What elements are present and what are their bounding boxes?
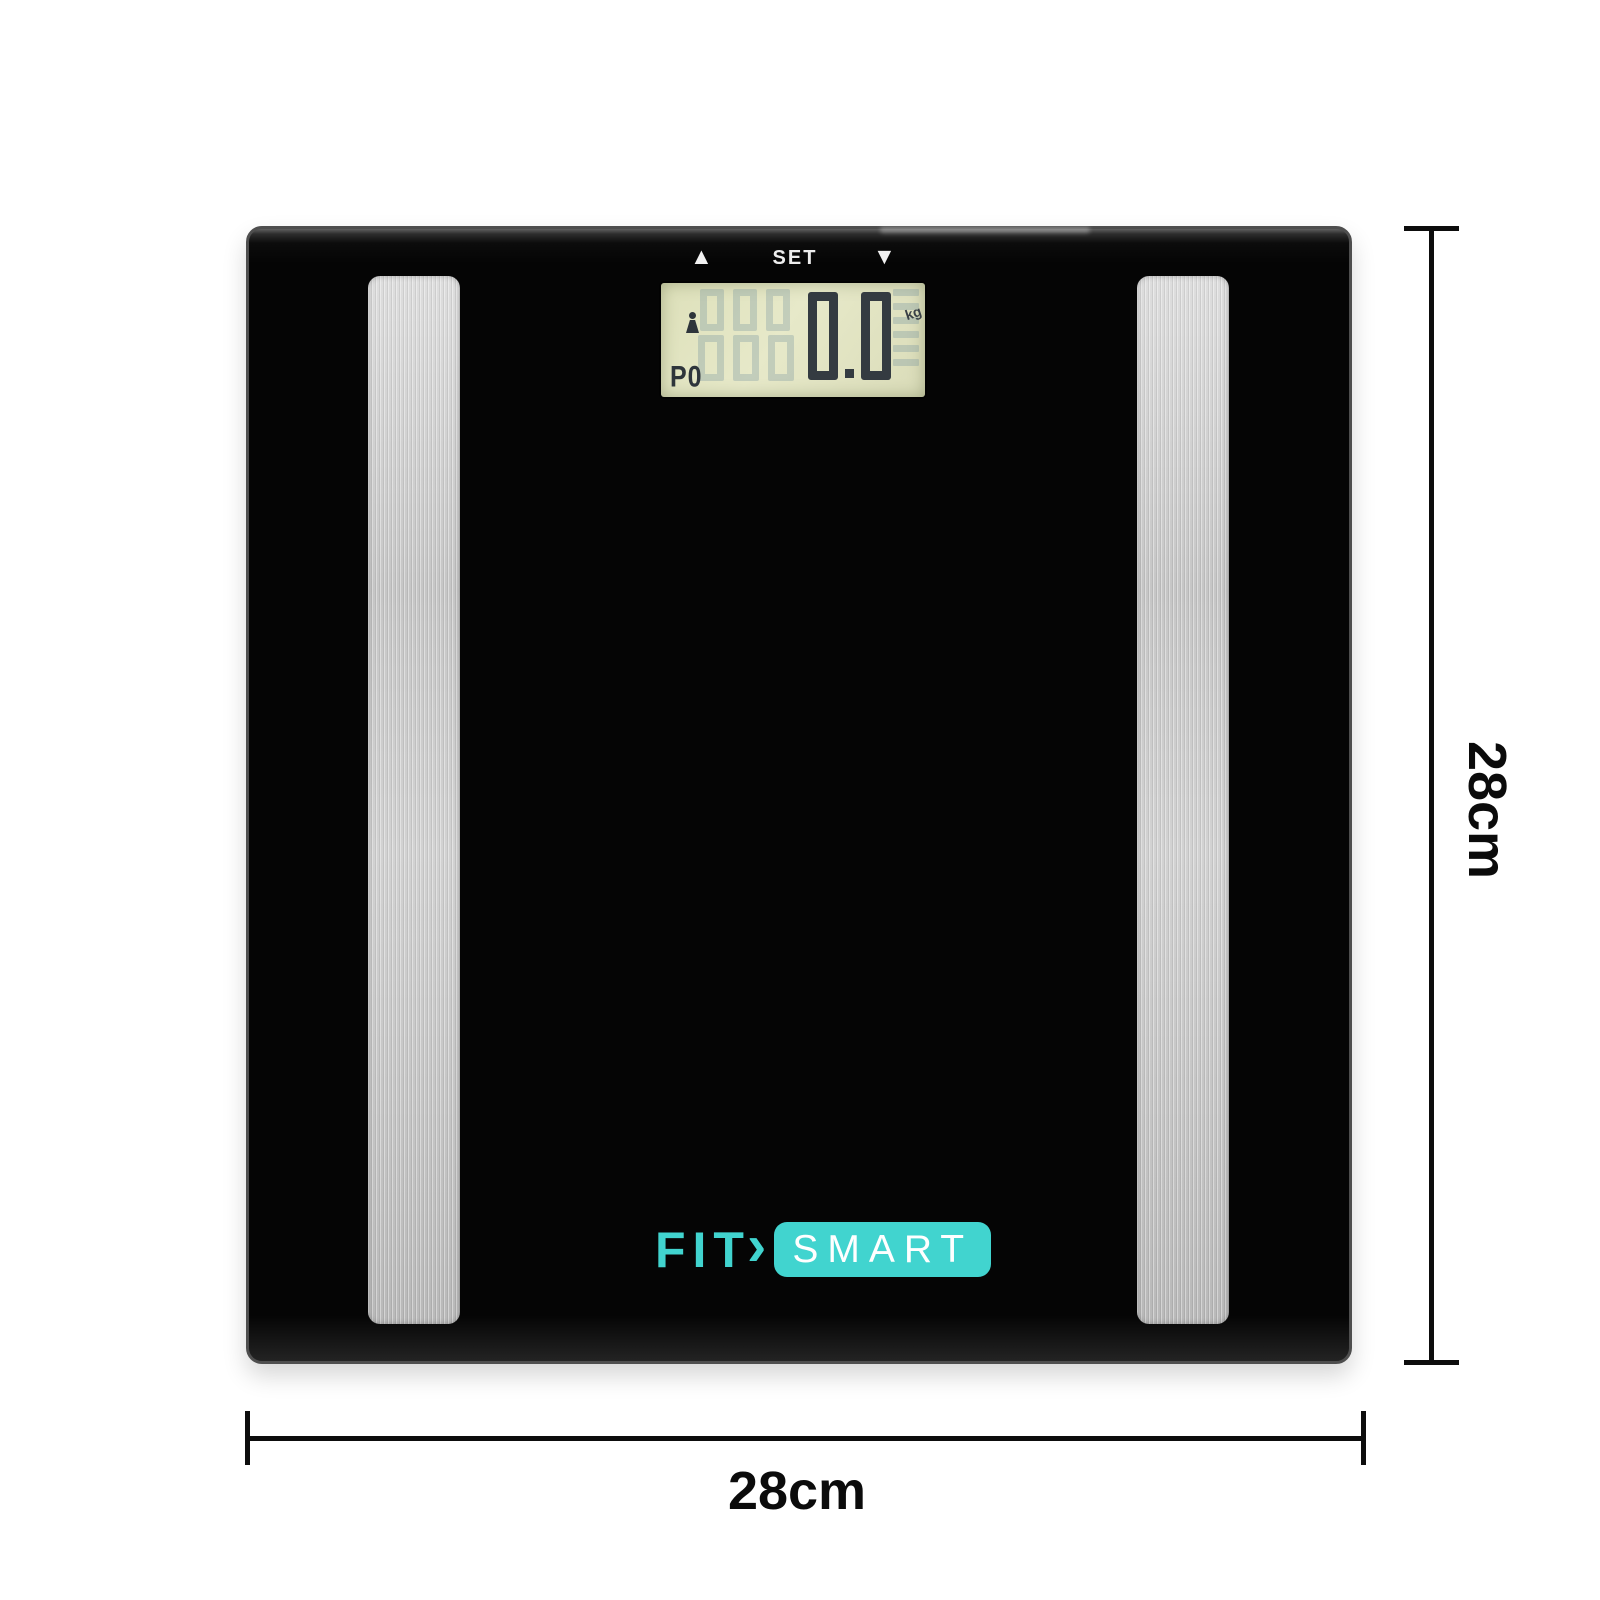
electrode-strip-left [368, 276, 460, 1324]
width-dimension-line [246, 1436, 1365, 1441]
brand-smart-badge: SMART [774, 1222, 991, 1277]
brand-logo: FIT › SMART [655, 1222, 991, 1277]
unit-label: kg [903, 303, 923, 323]
height-dimension-cap-top [1404, 226, 1459, 231]
product-photo: ▲ SET ▼ kg P0 FIT › SMART [0, 0, 1600, 1600]
height-dimension-label: 28cm [1456, 710, 1518, 910]
brand-fit-label: FIT [655, 1225, 751, 1275]
set-button-label: SET [755, 247, 835, 270]
user-icon [686, 312, 699, 333]
width-dimension-cap-right [1361, 1411, 1366, 1465]
width-dimension-cap-left [245, 1411, 250, 1465]
lcd-ghost-segments-column [893, 289, 919, 366]
height-dimension-line [1429, 228, 1434, 1364]
lcd-ghost-segments-row2 [698, 335, 794, 381]
mode-indicator: P0 [670, 360, 703, 394]
width-dimension-label: 28cm [647, 1460, 947, 1522]
scale-body: ▲ SET ▼ kg P0 FIT › SMART [246, 226, 1352, 1364]
brand-chevron-icon: › [747, 1223, 766, 1269]
lcd-ghost-segments-row1 [700, 289, 790, 331]
lcd-display: kg P0 [661, 283, 925, 397]
weight-digits [808, 292, 891, 380]
height-dimension-cap-bottom [1404, 1360, 1459, 1365]
down-triangle-icon: ▼ [873, 245, 896, 268]
glass-edge-highlight [880, 227, 1090, 233]
electrode-strip-right [1137, 276, 1229, 1324]
up-triangle-icon: ▲ [690, 245, 713, 268]
